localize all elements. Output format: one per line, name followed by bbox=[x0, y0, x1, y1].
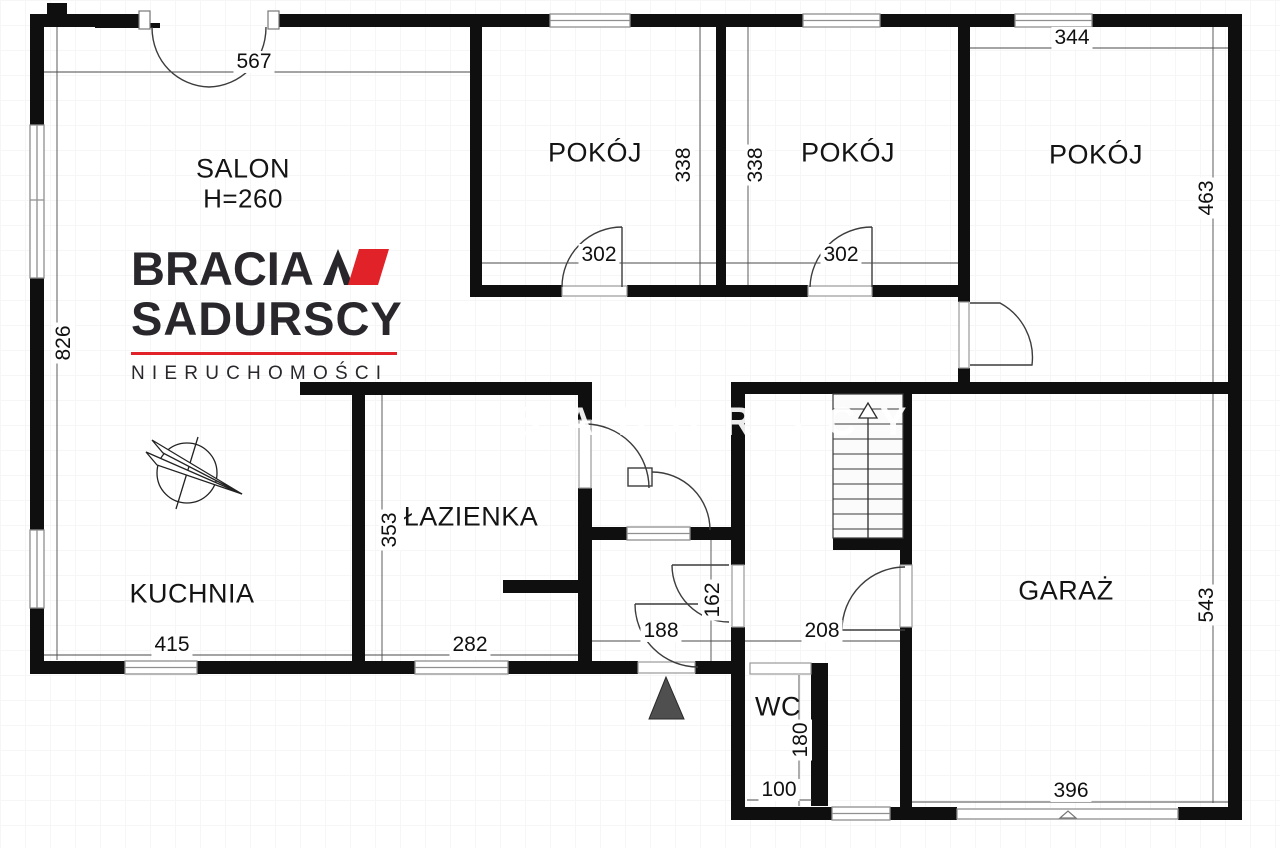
floor-plan-canvas bbox=[0, 0, 1280, 848]
room-label-pokoj-2: POKÓJ bbox=[801, 137, 895, 168]
room-label-pokoj-1: POKÓJ bbox=[548, 137, 642, 168]
bathroom-door bbox=[585, 424, 649, 488]
dimension-label: 353 bbox=[379, 509, 401, 550]
pokoj3-door bbox=[970, 303, 1032, 365]
room-label-garaz: GARAŻ bbox=[1018, 575, 1114, 606]
dimension-label: 302 bbox=[578, 244, 619, 266]
logo-line3: NIERUCHOMOŚCI bbox=[131, 363, 403, 385]
vestibule-door-swing bbox=[652, 472, 710, 530]
room-label-wc: WC bbox=[755, 691, 801, 722]
dimension-label: 180 bbox=[790, 719, 812, 760]
dimension-label: 463 bbox=[1196, 177, 1218, 218]
dimension-label: 302 bbox=[820, 244, 861, 266]
room-label-salon: SALONH=260 bbox=[196, 154, 290, 215]
dimension-label: 282 bbox=[449, 634, 490, 656]
dimension-label: 567 bbox=[233, 51, 274, 73]
dimension-label: 162 bbox=[702, 579, 724, 620]
north-arrow-icon bbox=[146, 437, 242, 509]
room-label-lazienka: ŁAZIENKA bbox=[404, 501, 539, 532]
windows bbox=[30, 14, 1092, 820]
logo-divider bbox=[131, 352, 397, 355]
entrance-marker-icon bbox=[649, 677, 684, 719]
agency-logo: BRACIA SADURSCY NIERUCHOMOŚCI bbox=[131, 245, 403, 385]
dimension-label: 100 bbox=[758, 779, 799, 801]
logo-line2: SADURSCY bbox=[131, 295, 403, 342]
room-sublabel-salon: H=260 bbox=[196, 185, 290, 215]
stairs bbox=[833, 394, 903, 538]
garage-door bbox=[957, 809, 1178, 819]
dimension-label: 396 bbox=[1050, 780, 1091, 802]
dimension-label: 344 bbox=[1051, 27, 1092, 49]
floor-plan-page: { "watermark": { "text": "SADURSCY" }, "… bbox=[0, 0, 1280, 848]
logo-roof-icon bbox=[321, 247, 393, 285]
dimension-label: 415 bbox=[151, 634, 192, 656]
room-label-pokoj-3: POKÓJ bbox=[1049, 139, 1143, 170]
dimension-label: 826 bbox=[53, 322, 75, 363]
logo-line1: BRACIA bbox=[131, 245, 314, 292]
dimension-label: 338 bbox=[673, 144, 695, 185]
dimension-label: 338 bbox=[745, 144, 767, 185]
walls bbox=[30, 3, 1242, 820]
garage-hall-door bbox=[842, 567, 905, 630]
dimension-label: 188 bbox=[640, 620, 681, 642]
room-label-kuchnia: KUCHNIA bbox=[129, 578, 254, 609]
dimension-label: 543 bbox=[1196, 584, 1218, 625]
dimension-label: 208 bbox=[801, 620, 842, 642]
salon-door-leaf-left bbox=[152, 27, 209, 87]
